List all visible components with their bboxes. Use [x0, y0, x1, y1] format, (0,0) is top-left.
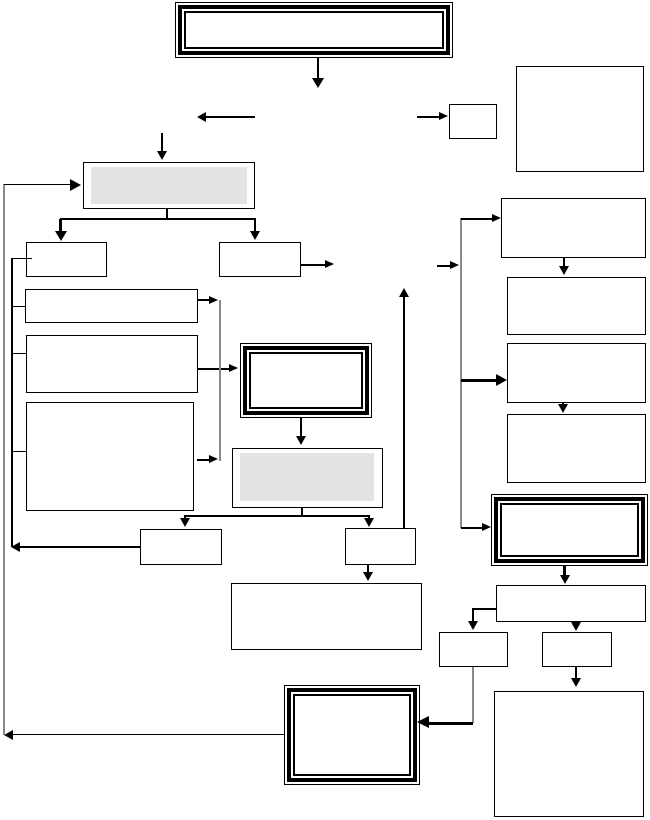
connector-into-gray-top: [161, 133, 164, 152]
midsmall-out-arrowhead-2: [450, 261, 459, 269]
gray-mid-right-arrowhead: [364, 518, 374, 527]
connector-split-left: [205, 116, 255, 118]
emphasis-box-bottom-mid: [287, 688, 417, 782]
emphasis-box-center-process-mid: [243, 346, 369, 415]
emphasis-box-top-banner-inner: [184, 11, 444, 49]
gray-mid-distribution-line: [184, 515, 370, 517]
connector-trunk-into-emphasis: [461, 527, 484, 529]
trunk-r3-arrowhead: [496, 374, 507, 386]
emphasis-box-right-inner: [500, 503, 639, 557]
trunk-emphasis-arrowhead: [482, 523, 491, 531]
node-left-3: [26, 335, 198, 393]
banner-down-arrowhead: [312, 78, 324, 88]
connector-loop-left: [19, 546, 140, 548]
distribution-right-arrowhead: [250, 231, 260, 240]
gray-top-distribution-line: [60, 218, 256, 220]
node-mid-small: [219, 242, 301, 277]
emphasis-box-top-banner: [175, 2, 453, 58]
node-top-right-large: [516, 66, 644, 172]
connector-r5-branchleft-h: [473, 608, 497, 610]
emphasis-box-bottom: [284, 685, 420, 785]
emphasis-r5-arrowhead: [560, 575, 570, 584]
loop-left-arrowhead: [11, 542, 20, 552]
node-right-1: [501, 198, 646, 258]
emphasis-box-top-banner-mid: [178, 5, 450, 55]
connector-r5-branchleft-v: [472, 608, 474, 622]
connector-center-down: [300, 418, 302, 437]
connector-emphasis-r5: [563, 566, 566, 575]
midsmall-out-arrowhead-1: [325, 260, 334, 268]
connector-trunk-into-r3: [461, 379, 498, 382]
feedback-line-outer: [3, 184, 5, 735]
gray-step-middle: [232, 448, 383, 508]
trunk-r1-arrowhead: [492, 214, 501, 222]
flowchart-canvas: [0, 0, 650, 820]
left3-out-arrowhead: [229, 364, 238, 372]
bottom-feedback-arrowhead: [4, 730, 13, 740]
r5-branchright-arrowhead: [571, 622, 581, 631]
connector-long-up: [403, 296, 405, 528]
emphasis-box-center-process-inner: [249, 352, 363, 409]
node-bottom-center-large: [231, 583, 422, 650]
node-left-2: [25, 289, 198, 323]
connector-midsmall-out-2: [437, 265, 451, 267]
midsmall-down-arrowhead: [363, 572, 373, 581]
node-right-4: [507, 414, 646, 483]
feedback-stub-1: [11, 258, 32, 260]
connector-split-right: [417, 116, 441, 118]
r1-r2-arrowhead: [559, 266, 569, 275]
feedback-stub-4: [11, 451, 26, 453]
connector-into-bottom-emphasis: [429, 722, 473, 725]
connector-banner-down: [317, 58, 320, 80]
connector-trunk-into-r1: [461, 218, 493, 220]
branchright-down-arrowhead: [571, 678, 581, 687]
gray-mid-left-arrowhead: [180, 518, 190, 527]
bottom-emphasis-arrowhead: [417, 716, 429, 728]
emphasis-box-bottom-inner: [293, 694, 411, 776]
center-down-arrowhead: [296, 436, 306, 445]
gray-step-top: [83, 162, 255, 209]
left4-out-arrowhead: [209, 455, 218, 463]
long-up-arrowhead: [399, 288, 409, 297]
feedback-gray-arrowhead: [70, 179, 81, 191]
trunk-line-right: [460, 218, 462, 528]
gray-step-middle-fill: [240, 453, 374, 501]
connector-left3-out: [198, 368, 230, 370]
node-branch-left-small: [439, 632, 508, 667]
connector-feedback-into-gray: [4, 184, 72, 186]
node-right-2: [507, 277, 646, 335]
feedback-line-inner: [11, 258, 13, 547]
connector-bottom-feedback: [12, 734, 285, 736]
emphasis-box-right-mid: [494, 497, 645, 563]
gray-step-top-fill: [91, 167, 247, 204]
node-top-small: [449, 104, 497, 139]
distribution-left-arrowhead: [55, 231, 67, 241]
connector-midsmall-out-1: [301, 264, 326, 266]
left2-out-arrowhead: [209, 296, 218, 304]
node-bottom-right-large: [494, 691, 644, 817]
r3-r4-arrowhead: [558, 404, 568, 413]
emphasis-box-center-process: [240, 343, 372, 418]
split-right-arrowhead: [439, 112, 448, 120]
node-right-5: [496, 585, 646, 622]
feedback-stub-3: [11, 353, 26, 355]
connector-branchleft-down: [472, 667, 474, 723]
feedback-stub-2: [11, 306, 26, 308]
node-left-4: [26, 402, 194, 511]
r5-branchleft-arrowhead: [468, 621, 478, 630]
split-left-arrowhead: [197, 112, 206, 122]
node-right-3: [507, 343, 646, 403]
node-bottom-left-small: [140, 529, 222, 565]
node-branch-right-small: [542, 632, 612, 667]
emphasis-box-right: [491, 494, 648, 566]
merge-line-left: [219, 300, 221, 461]
node-bottom-mid-small: [345, 528, 416, 565]
node-left-small: [26, 242, 107, 277]
gray-top-down-arrowhead: [157, 151, 167, 160]
